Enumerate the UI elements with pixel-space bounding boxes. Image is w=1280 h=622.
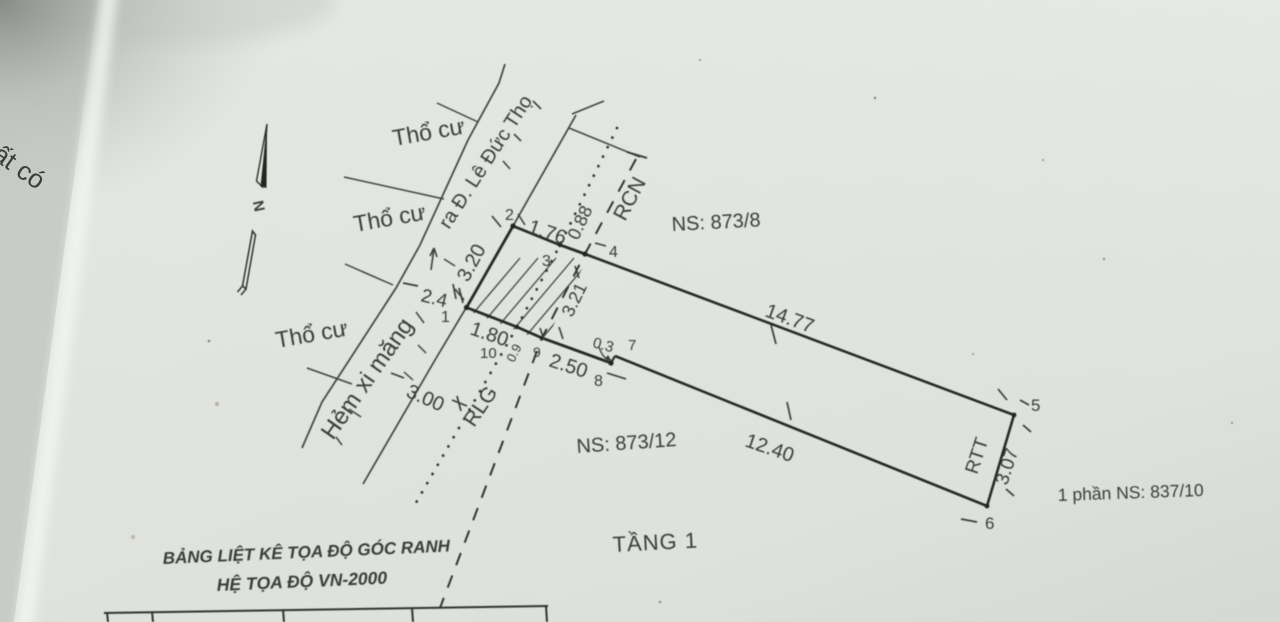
svg-text:8: 8: [594, 373, 603, 390]
svg-text:9: 9: [533, 344, 541, 360]
svg-text:NS: 873/8: NS: 873/8: [671, 209, 761, 236]
svg-text:2: 2: [505, 207, 514, 224]
svg-text:5: 5: [1031, 396, 1040, 415]
svg-text:3: 3: [542, 253, 551, 270]
svg-text:TẦNG 1: TẦNG 1: [612, 528, 699, 557]
svg-text:1: 1: [441, 309, 450, 326]
svg-text:4: 4: [609, 244, 618, 261]
svg-text:7: 7: [628, 337, 636, 354]
svg-text:6: 6: [985, 514, 994, 533]
